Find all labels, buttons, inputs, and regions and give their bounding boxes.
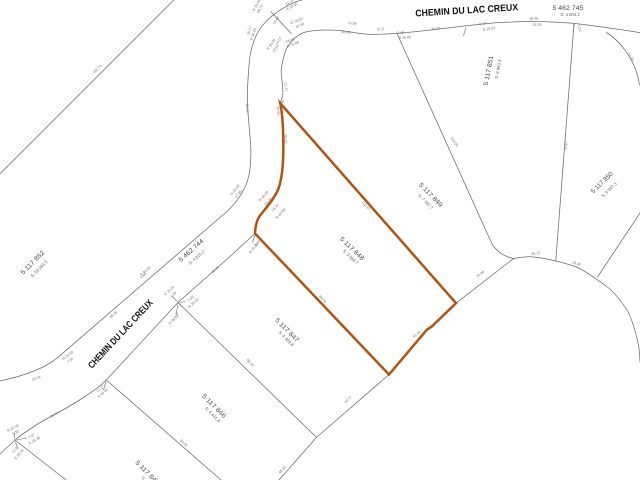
svg-text:16.36: 16.36 bbox=[626, 52, 634, 62]
svg-text:14.07: 14.07 bbox=[274, 36, 282, 46]
svg-text:30.04: 30.04 bbox=[50, 411, 60, 419]
svg-text:S: 8 983.3: S: 8 983.3 bbox=[494, 59, 503, 80]
svg-text:28.36: 28.36 bbox=[532, 23, 541, 27]
svg-text:73.97: 73.97 bbox=[563, 142, 569, 152]
svg-text:6.42: 6.42 bbox=[479, 21, 486, 26]
svg-text:5 117 851: 5 117 851 bbox=[483, 55, 496, 86]
svg-text:55.56: 55.56 bbox=[179, 439, 188, 448]
svg-text:5 117 845: 5 117 845 bbox=[134, 460, 161, 480]
svg-text:56.16: 56.16 bbox=[246, 358, 255, 367]
svg-text:8.22: 8.22 bbox=[377, 27, 384, 32]
svg-text:126.97: 126.97 bbox=[361, 200, 371, 211]
svg-text:33.04: 33.04 bbox=[31, 375, 41, 382]
svg-text:CHEMIN DU LAC CREUX: CHEMIN DU LAC CREUX bbox=[85, 297, 155, 371]
svg-text:R 40.00: R 40.00 bbox=[275, 208, 286, 220]
svg-text:28.36: 28.36 bbox=[529, 17, 538, 21]
svg-text:7.48: 7.48 bbox=[397, 31, 404, 35]
svg-text:33.75: 33.75 bbox=[271, 203, 280, 212]
svg-text:21.47: 21.47 bbox=[283, 82, 288, 91]
svg-text:25.03: 25.03 bbox=[245, 103, 249, 112]
svg-text:R 35.00: R 35.00 bbox=[168, 314, 180, 325]
svg-text:74.99: 74.99 bbox=[347, 21, 356, 25]
svg-text:R 40.00: R 40.00 bbox=[248, 242, 259, 254]
svg-text:1.91: 1.91 bbox=[577, 24, 583, 32]
svg-text:39.53: 39.53 bbox=[283, 134, 288, 143]
svg-text:124.59: 124.59 bbox=[450, 136, 460, 147]
svg-text:R 40.00: R 40.00 bbox=[399, 35, 412, 40]
svg-text:CHEMIN DU LAC CREUX: CHEMIN DU LAC CREUX bbox=[415, 2, 519, 19]
svg-text:95.65: 95.65 bbox=[341, 30, 350, 35]
svg-text:48.06: 48.06 bbox=[109, 310, 118, 319]
svg-text:S: 4 004.1: S: 4 004.1 bbox=[560, 12, 580, 17]
svg-text:40.77: 40.77 bbox=[343, 395, 352, 404]
svg-text:R 25.00: R 25.00 bbox=[482, 26, 495, 32]
svg-text:34.86: 34.86 bbox=[476, 270, 486, 279]
svg-text:46.15: 46.15 bbox=[531, 251, 540, 256]
svg-text:30.90: 30.90 bbox=[431, 26, 440, 31]
svg-text:60.55: 60.55 bbox=[276, 106, 281, 115]
